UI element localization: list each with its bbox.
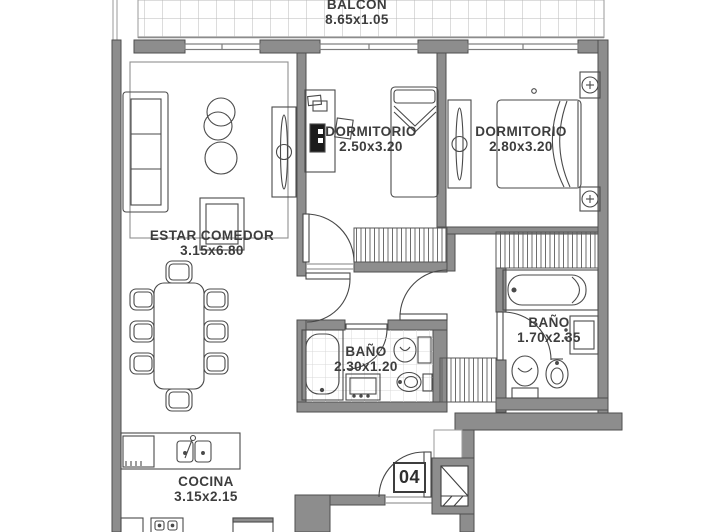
room-dims: 3.15x2.15 [174, 489, 238, 504]
room-dims: 8.65x1.05 [325, 12, 389, 27]
room-dims: 2.50x3.20 [325, 139, 417, 154]
wardrobe [448, 100, 471, 188]
bidet [546, 359, 568, 388]
unit-number: 04 [399, 467, 420, 488]
door-dorm1 [303, 214, 354, 262]
double-sink [177, 436, 211, 463]
room-dims: 3.15x6.80 [150, 243, 274, 258]
nightstand-bottom [580, 187, 600, 211]
door-living-hall [306, 273, 350, 322]
dining-table [154, 283, 204, 389]
room-name: DORMITORIO [325, 124, 417, 139]
room-name: COCINA [178, 474, 234, 489]
toilet [512, 356, 538, 398]
room-label-estar-comedor: ESTAR COMEDOR 3.15x6.80 [150, 228, 274, 258]
shaft-niche [434, 430, 462, 458]
dishwasher [233, 518, 273, 532]
closet-dorm1 [354, 228, 447, 262]
dining-chairs [130, 261, 228, 411]
room-label-bano-interno: BAÑO 2.30x1.20 [334, 344, 398, 374]
room-name: BALCON [327, 0, 387, 12]
unit-number-badge: 04 [393, 462, 426, 493]
floor-plan: BALCON 8.65x1.05 ESTAR COMEDOR 3.15x6.80… [0, 0, 720, 532]
room-name: BAÑO [345, 344, 386, 359]
fridge [123, 436, 154, 467]
room-label-cocina: COCINA 3.15x2.15 [174, 474, 238, 504]
nightstand-top [580, 72, 600, 98]
room-name: ESTAR COMEDOR [150, 228, 274, 243]
closet-dorm2 [496, 232, 598, 268]
closet-hall [440, 358, 496, 402]
pillow [394, 90, 435, 103]
bathtub [503, 270, 598, 310]
side-tables [204, 98, 237, 174]
windows [185, 44, 578, 50]
tv-unit [272, 107, 296, 197]
shaft-x-symbol [441, 466, 468, 506]
floor-plan-drawing [0, 0, 720, 532]
room-label-dormitorio-1: DORMITORIO 2.50x3.20 [325, 124, 417, 154]
door-dorm2 [400, 270, 447, 320]
lower-counter [121, 518, 273, 532]
room-dims: 1.70x2.35 [517, 330, 581, 345]
room-dims: 2.80x3.20 [475, 139, 567, 154]
walls [112, 40, 622, 532]
room-dims: 2.30x1.20 [334, 359, 398, 374]
room-label-dormitorio-2: DORMITORIO 2.80x3.20 [475, 124, 567, 154]
room-name: DORMITORIO [475, 124, 567, 139]
room-label-balcon: BALCON 8.65x1.05 [325, 0, 389, 27]
counter [121, 433, 240, 469]
stove [151, 518, 183, 532]
room-name: BAÑO [528, 315, 569, 330]
room-label-bano-suite: BAÑO 1.70x2.35 [517, 315, 581, 345]
ceiling-mark [532, 89, 537, 94]
